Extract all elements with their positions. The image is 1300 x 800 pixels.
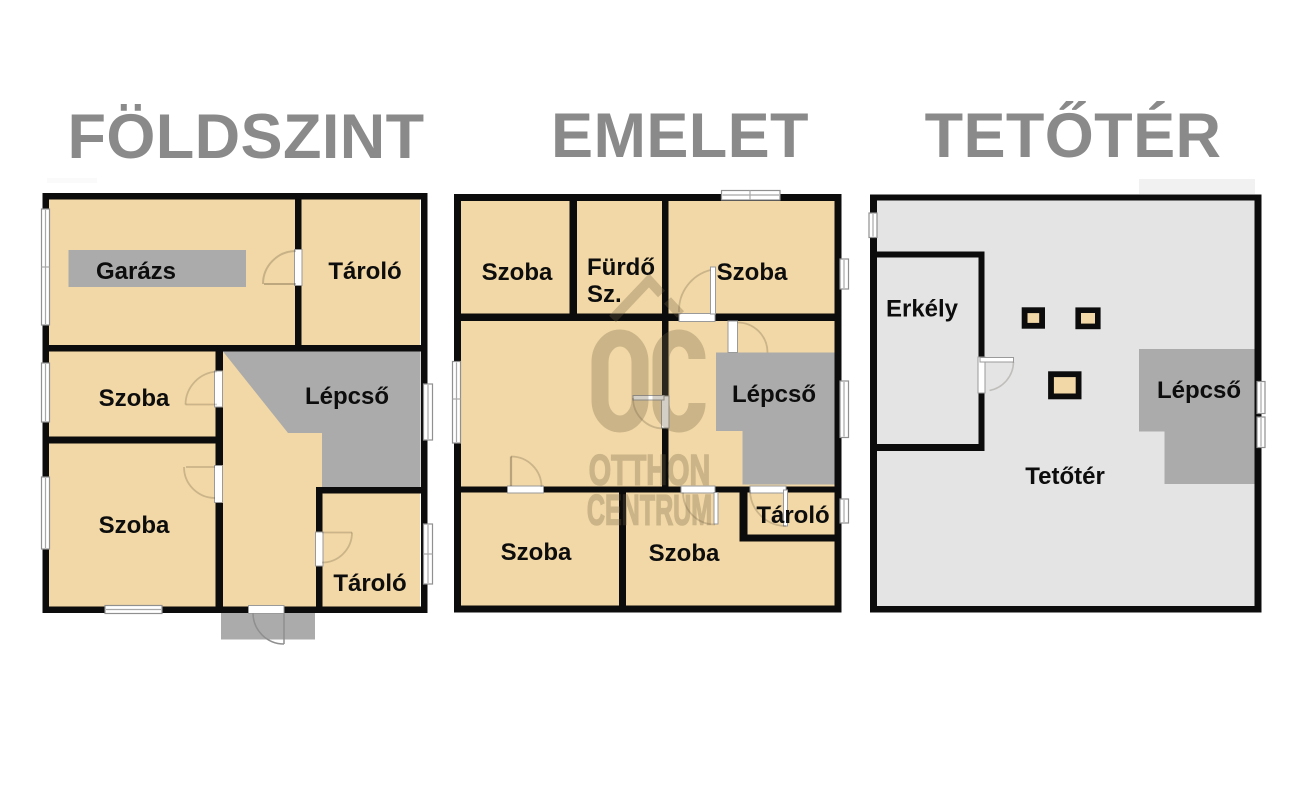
svg-text:Szoba: Szoba — [717, 259, 788, 286]
svg-text:Garázs: Garázs — [96, 258, 176, 285]
svg-text:Szoba: Szoba — [501, 539, 572, 566]
svg-text:EMELET: EMELET — [551, 101, 809, 171]
svg-text:FÖLDSZINT: FÖLDSZINT — [67, 102, 424, 172]
svg-text:Szoba: Szoba — [99, 512, 170, 539]
svg-text:Lépcső: Lépcső — [732, 381, 816, 408]
svg-text:Tároló: Tároló — [333, 570, 406, 597]
svg-text:Lépcső: Lépcső — [305, 383, 389, 410]
svg-text:Szoba: Szoba — [482, 259, 553, 286]
svg-text:Lépcső: Lépcső — [1157, 377, 1241, 404]
svg-text:Tároló: Tároló — [328, 258, 401, 285]
svg-text:Tetőtér: Tetőtér — [1025, 463, 1105, 490]
svg-text:Szoba: Szoba — [99, 385, 170, 412]
svg-text:Tároló: Tároló — [756, 502, 829, 529]
svg-text:Fürdő: Fürdő — [587, 254, 655, 281]
svg-text:Szoba: Szoba — [649, 540, 720, 567]
svg-text:Erkély: Erkély — [886, 296, 959, 323]
svg-text:TETŐTÉR: TETŐTÉR — [925, 101, 1222, 171]
svg-text:CENTRUM: CENTRUM — [587, 487, 712, 535]
svg-text:Sz.: Sz. — [587, 281, 622, 308]
